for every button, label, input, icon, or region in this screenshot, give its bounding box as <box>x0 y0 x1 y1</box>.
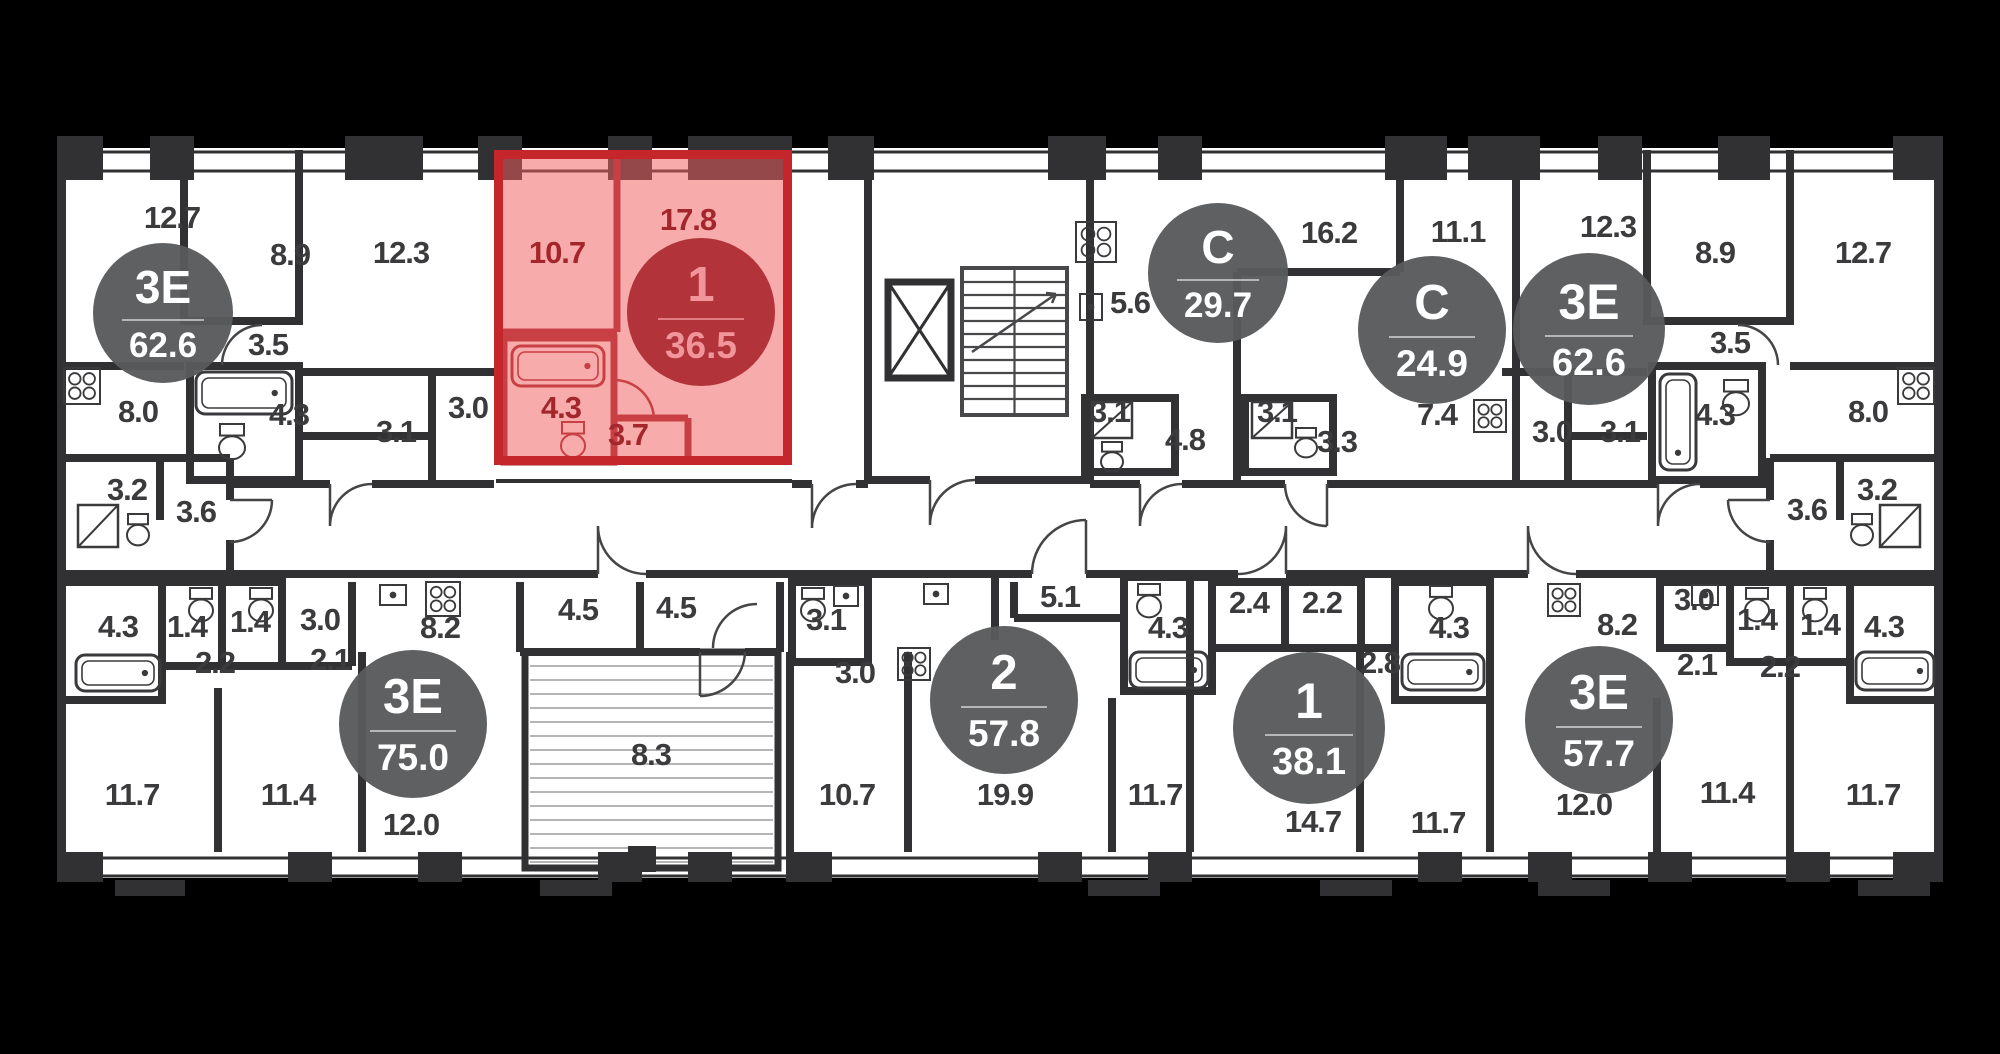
unit-type-label: 3Е <box>1569 668 1629 719</box>
room-area-label: 12.7 <box>1835 235 1891 271</box>
floorplan-canvas: 12.78.912.33.58.04.33.03.13.23.610.717.8… <box>0 0 2000 1054</box>
room-area-label: 3.2 <box>1857 472 1897 508</box>
room-area-label: 4.3 <box>1695 397 1735 433</box>
room-area-label: 11.7 <box>1128 777 1183 813</box>
room-area-label: 8.9 <box>270 237 310 273</box>
room-area-label: 8.0 <box>118 394 158 430</box>
unit-badge[interactable]: 3Е57.7 <box>1525 646 1673 794</box>
unit-badge[interactable]: С24.9 <box>1358 256 1506 404</box>
room-area-label: 4.8 <box>1165 422 1205 458</box>
room-area-label: 3.0 <box>448 390 488 426</box>
room-area-label: 16.2 <box>1301 215 1357 251</box>
room-area-label: 1.4 <box>167 609 207 645</box>
unit-type-label: С <box>1201 223 1234 271</box>
badge-divider <box>1556 726 1642 728</box>
unit-badge[interactable]: 3Е75.0 <box>339 650 487 798</box>
room-area-label: 8.3 <box>631 737 671 773</box>
floorplan-walls <box>0 0 2000 1054</box>
room-area-label: 3.0 <box>835 655 875 691</box>
room-area-label: 4.3 <box>541 390 581 426</box>
room-area-label: 3.5 <box>1710 325 1750 361</box>
room-area-label: 1.4 <box>1800 607 1840 643</box>
room-area-label: 2.1 <box>1677 647 1717 683</box>
room-area-label: 4.3 <box>269 397 309 433</box>
room-area-label: 2.2 <box>195 645 235 681</box>
unit-total-area-label: 62.6 <box>129 328 197 363</box>
room-area-label: 1.4 <box>230 604 270 640</box>
room-area-label: 3.1 <box>1090 394 1130 430</box>
unit-total-area-label: 36.5 <box>665 327 737 364</box>
room-area-label: 12.3 <box>373 235 429 271</box>
room-area-label: 2.8 <box>1360 645 1400 681</box>
unit-badge[interactable]: С29.7 <box>1148 203 1288 343</box>
unit-badge[interactable]: 138.1 <box>1233 652 1385 804</box>
room-area-label: 10.7 <box>529 235 585 271</box>
unit-type-label: С <box>1414 278 1449 329</box>
room-area-label: 17.8 <box>660 202 716 238</box>
room-area-label: 4.3 <box>1864 609 1904 645</box>
room-area-label: 8.0 <box>1848 394 1888 430</box>
badge-divider <box>658 318 744 320</box>
room-area-label: 11.4 <box>261 777 316 813</box>
room-area-label: 3.1 <box>1257 394 1297 430</box>
room-area-label: 3.0 <box>1674 582 1714 618</box>
unit-type-label: 1 <box>1295 675 1323 728</box>
unit-badge[interactable]: 257.8 <box>930 626 1078 774</box>
unit-total-area-label: 57.7 <box>1563 735 1635 772</box>
unit-type-label: 3Е <box>135 263 191 311</box>
unit-total-area-label: 62.6 <box>1552 344 1626 382</box>
room-area-label: 4.3 <box>1429 610 1469 646</box>
room-area-label: 8.9 <box>1695 235 1735 271</box>
room-area-label: 3.2 <box>107 472 147 508</box>
room-area-label: 10.7 <box>819 777 875 813</box>
room-area-label: 4.3 <box>1148 610 1188 646</box>
room-area-label: 2.2 <box>1302 585 1342 621</box>
badge-divider <box>1389 336 1475 338</box>
room-area-label: 12.3 <box>1580 209 1636 245</box>
unit-total-area-label: 38.1 <box>1272 743 1346 781</box>
room-area-label: 3.6 <box>176 494 216 530</box>
room-area-label: 3.3 <box>1317 424 1357 460</box>
unit-type-label: 3Е <box>1558 276 1619 329</box>
room-area-label: 8.2 <box>1597 607 1637 643</box>
badge-divider <box>961 706 1047 708</box>
room-area-label: 11.7 <box>105 777 160 813</box>
badge-divider <box>1177 279 1258 281</box>
room-area-label: 3.0 <box>1532 414 1572 450</box>
room-area-label: 2.2 <box>1760 649 1800 685</box>
room-area-label: 4.3 <box>98 609 138 645</box>
unit-type-label: 1 <box>687 260 714 311</box>
room-area-label: 11.7 <box>1411 805 1466 841</box>
unit-total-area-label: 75.0 <box>377 739 449 776</box>
room-area-label: 11.1 <box>1431 214 1486 250</box>
badge-divider <box>1265 734 1353 736</box>
unit-type-label: 3Е <box>383 672 443 723</box>
room-area-label: 5.6 <box>1110 285 1150 321</box>
room-area-label: 12.7 <box>144 200 200 236</box>
room-area-label: 3.6 <box>1787 492 1827 528</box>
room-area-label: 14.7 <box>1285 804 1341 840</box>
room-area-label: 4.5 <box>558 592 598 628</box>
unit-total-area-label: 57.8 <box>968 715 1040 752</box>
room-area-label: 3.1 <box>806 602 846 638</box>
unit-badge[interactable]: 136.5 <box>627 238 775 386</box>
room-area-label: 3.0 <box>300 602 340 638</box>
room-area-label: 1.4 <box>1737 602 1777 638</box>
room-area-label: 2.1 <box>310 642 350 678</box>
room-area-label: 5.1 <box>1040 579 1080 615</box>
unit-badge[interactable]: 3Е62.6 <box>1513 253 1665 405</box>
room-area-label: 3.1 <box>1600 414 1640 450</box>
badge-divider <box>122 319 203 321</box>
unit-total-area-label: 24.9 <box>1396 345 1468 382</box>
unit-type-label: 2 <box>990 648 1017 699</box>
room-area-label: 11.4 <box>1700 775 1755 811</box>
room-area-label: 3.5 <box>248 327 288 363</box>
room-area-label: 3.7 <box>608 417 648 453</box>
badge-divider <box>1545 335 1633 337</box>
room-area-label: 19.9 <box>977 777 1033 813</box>
unit-total-area-label: 29.7 <box>1184 288 1252 323</box>
badge-divider <box>370 730 456 732</box>
room-area-label: 12.0 <box>383 807 439 843</box>
room-area-label: 8.2 <box>420 610 460 646</box>
room-area-label: 3.1 <box>376 414 416 450</box>
room-area-label: 11.7 <box>1846 777 1901 813</box>
room-area-label: 4.5 <box>656 590 696 626</box>
room-area-label: 2.4 <box>1229 585 1269 621</box>
unit-badge[interactable]: 3Е62.6 <box>93 243 233 383</box>
